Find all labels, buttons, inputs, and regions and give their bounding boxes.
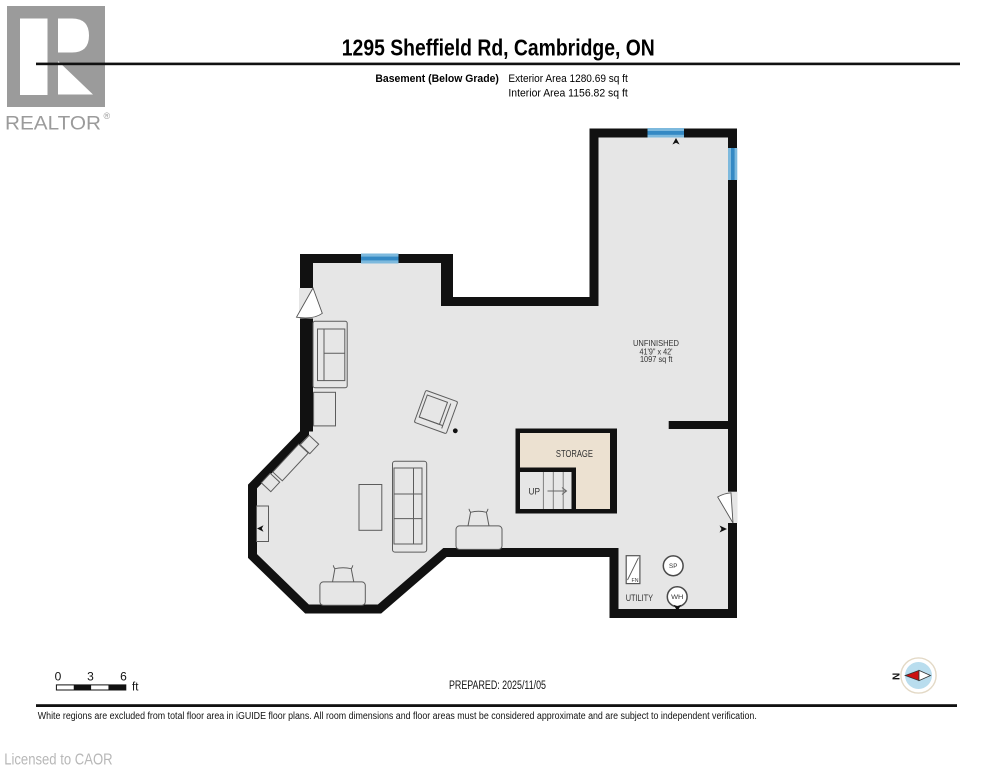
- svg-text:N: N: [892, 673, 903, 680]
- svg-text:0: 0: [55, 670, 62, 684]
- svg-text:SP: SP: [669, 563, 678, 570]
- svg-text:Exterior Area 1280.69 sq ft: Exterior Area 1280.69 sq ft: [508, 73, 628, 85]
- svg-text:FN: FN: [632, 578, 639, 584]
- svg-text:6: 6: [120, 670, 127, 684]
- svg-text:REALTOR: REALTOR: [5, 113, 101, 135]
- svg-text:PREPARED: 2025/11/05: PREPARED: 2025/11/05: [449, 680, 546, 692]
- svg-text:Interior Area 1156.82 sq ft: Interior Area 1156.82 sq ft: [508, 88, 628, 100]
- svg-text:1295 Sheffield Rd, Cambridge,: 1295 Sheffield Rd, Cambridge, ON: [342, 35, 655, 61]
- svg-text:ft: ft: [132, 681, 139, 693]
- svg-text:3: 3: [87, 670, 94, 684]
- svg-text:®: ®: [104, 111, 111, 121]
- svg-text:STORAGE: STORAGE: [556, 449, 593, 460]
- svg-text:UNFINISHED: UNFINISHED: [633, 338, 679, 348]
- svg-text:White regions are excluded fro: White regions are excluded from total fl…: [38, 711, 757, 722]
- svg-text:Licensed to CAOR: Licensed to CAOR: [4, 752, 112, 768]
- svg-text:WH: WH: [671, 594, 683, 601]
- svg-text:UTILITY: UTILITY: [626, 593, 653, 603]
- svg-text:Basement (Below Grade): Basement (Below Grade): [375, 73, 499, 85]
- svg-text:UP: UP: [529, 486, 541, 497]
- svg-text:1097 sq ft: 1097 sq ft: [640, 355, 673, 364]
